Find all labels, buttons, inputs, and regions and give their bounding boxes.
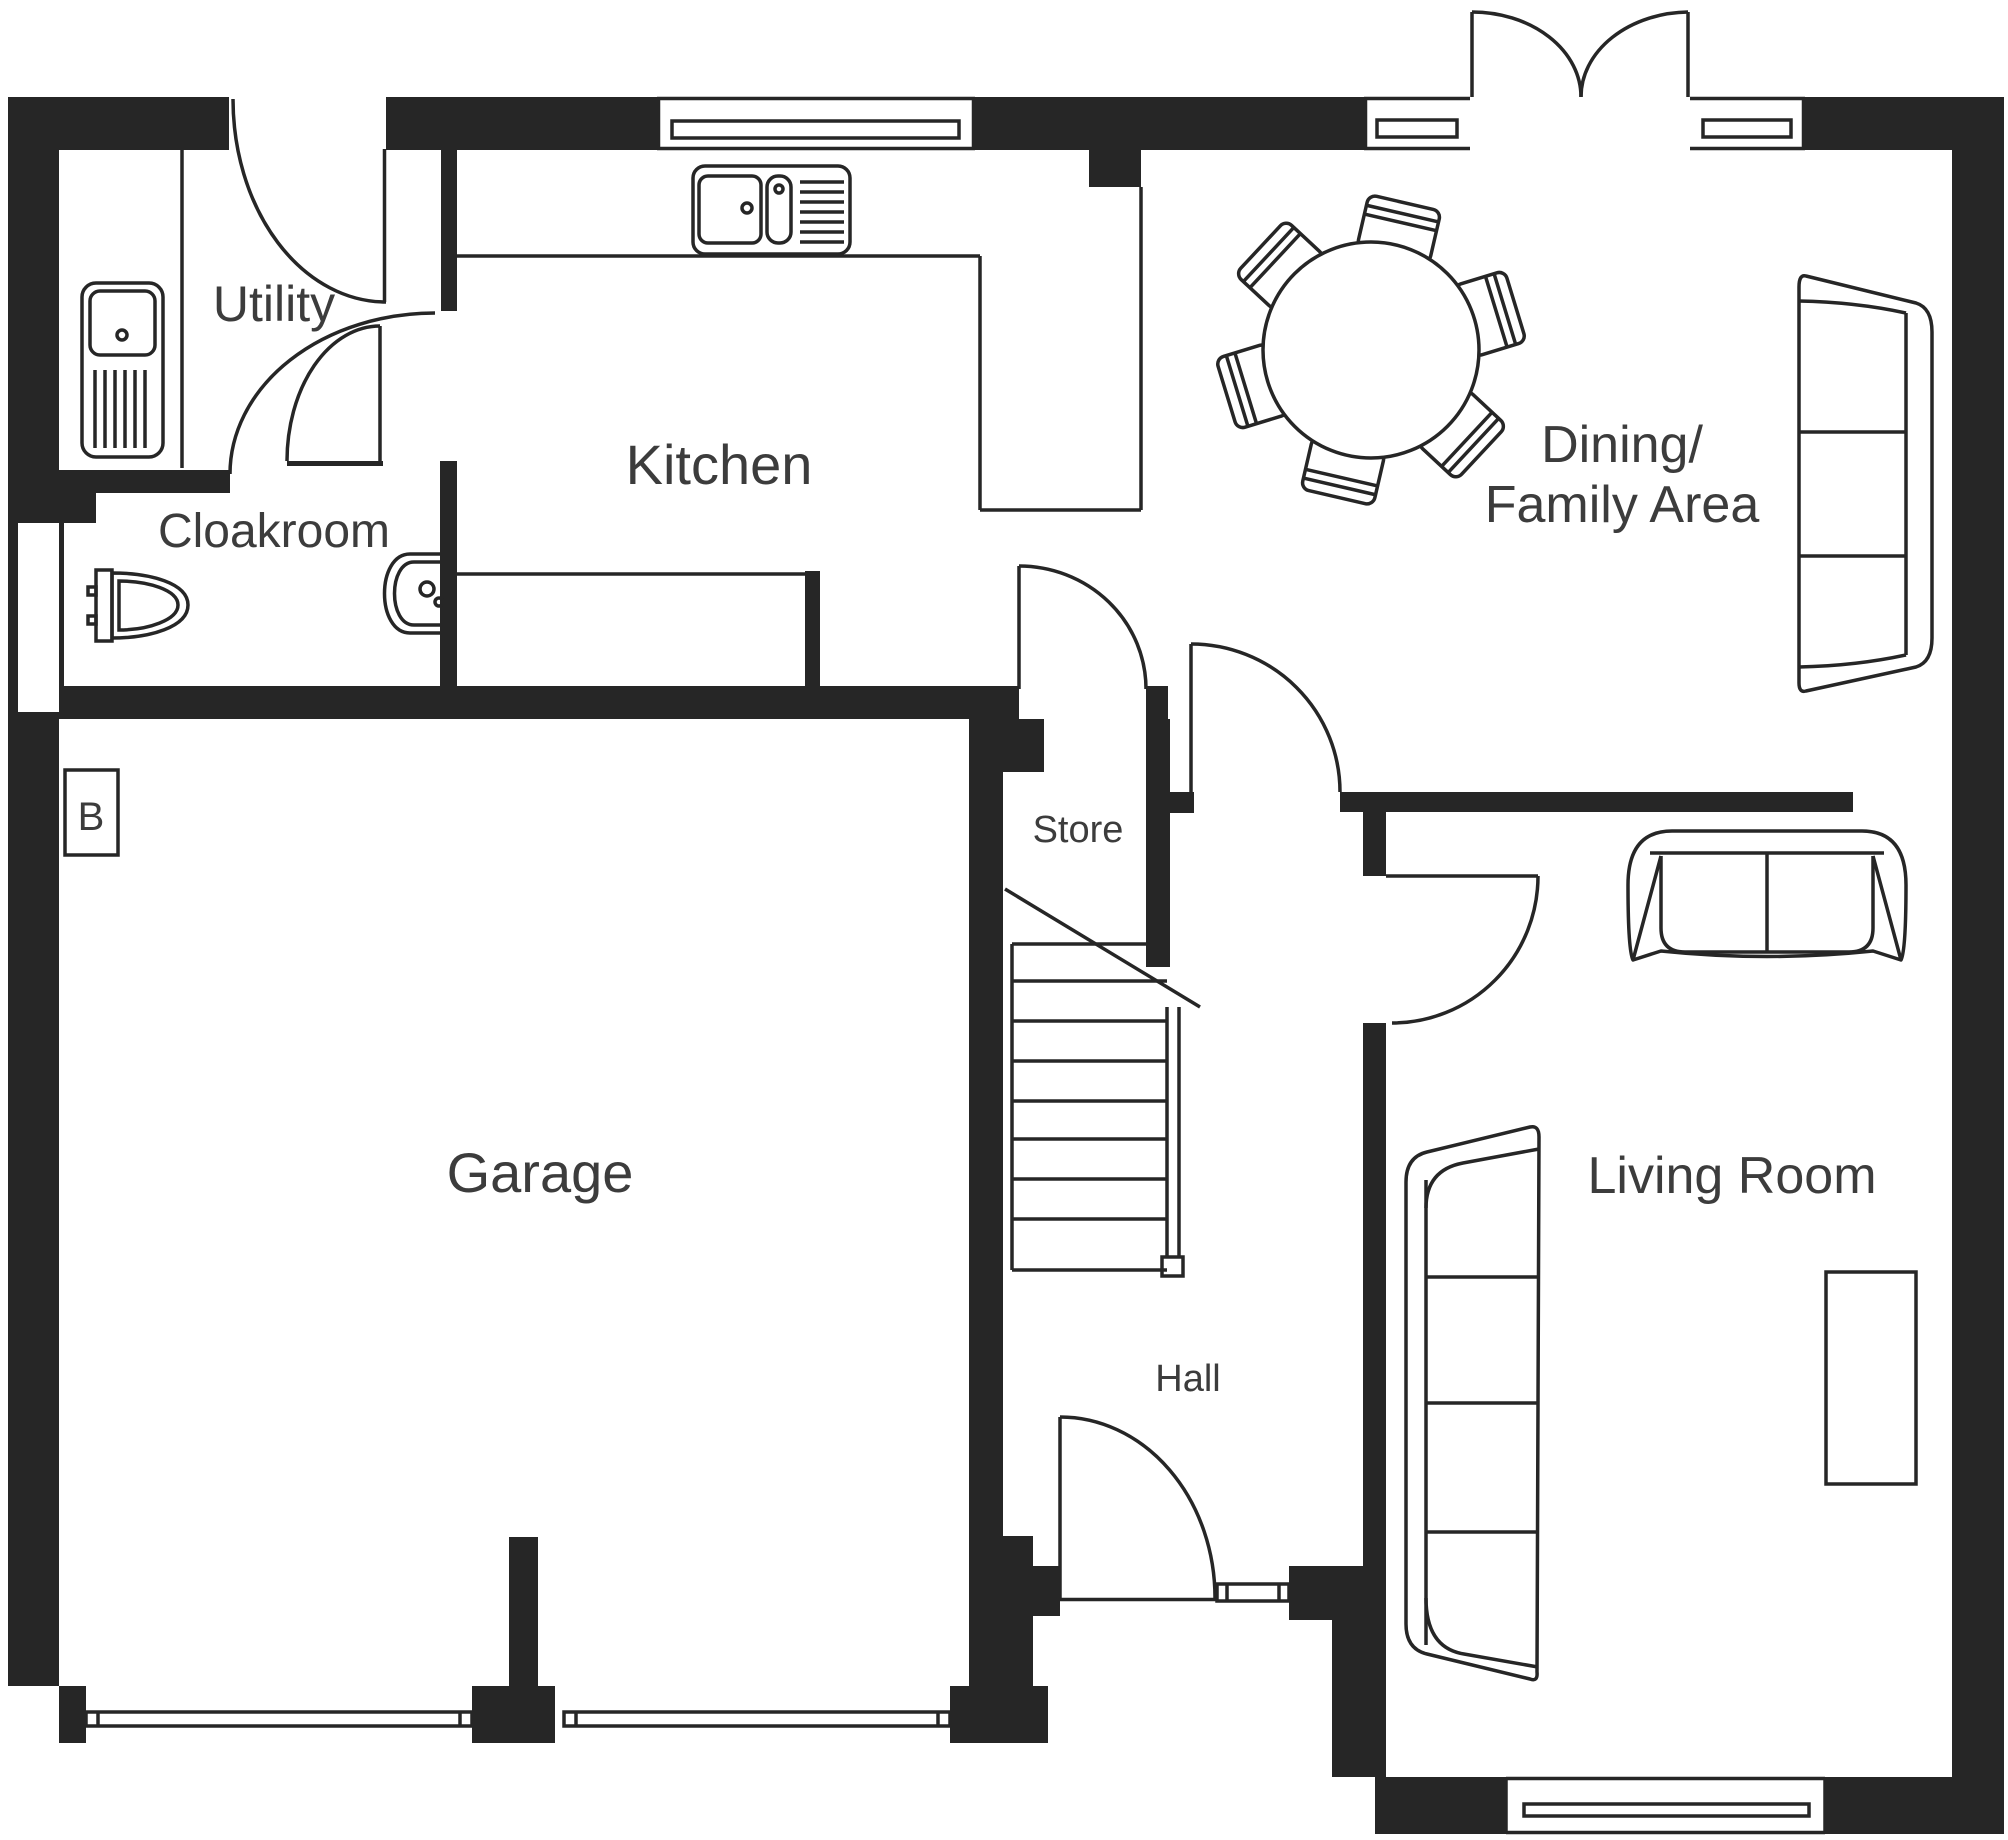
svg-text:Dining/: Dining/ (1541, 416, 1703, 474)
svg-text:Utility: Utility (213, 276, 335, 332)
svg-text:Garage: Garage (447, 1141, 634, 1204)
svg-text:Cloakroom: Cloakroom (158, 505, 390, 558)
svg-text:Store: Store (1033, 809, 1124, 851)
svg-text:Family Area: Family Area (1485, 476, 1760, 534)
svg-text:B: B (78, 795, 105, 839)
svg-text:Kitchen: Kitchen (626, 433, 813, 496)
svg-text:Living Room: Living Room (1587, 1147, 1876, 1205)
svg-text:Hall: Hall (1155, 1358, 1220, 1400)
